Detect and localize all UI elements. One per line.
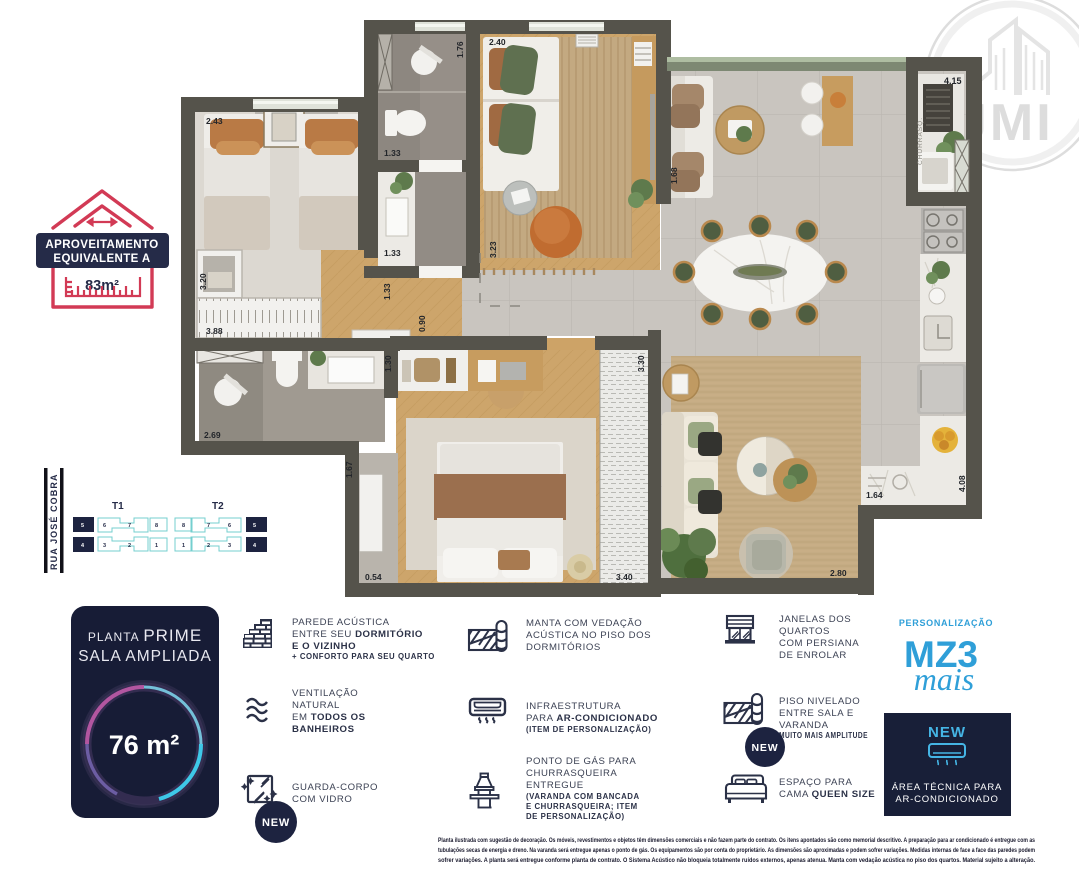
svg-text:DORMITÓRIOS: DORMITÓRIOS — [526, 642, 601, 653]
svg-text:1.30: 1.30 — [383, 355, 393, 372]
svg-text:+ CONFORTO PARA SEU QUARTO: + CONFORTO PARA SEU QUARTO — [292, 652, 435, 661]
svg-text:RUA JOSÉ COBRA: RUA JOSÉ COBRA — [49, 473, 59, 570]
svg-text:CHURRASQ.: CHURRASQ. — [917, 117, 924, 165]
svg-text:VENTILAÇÃO: VENTILAÇÃO — [292, 688, 358, 699]
svg-text:1: 1 — [182, 543, 185, 549]
svg-text:ACÚSTICA NO PISO DOS: ACÚSTICA NO PISO DOS — [526, 630, 651, 641]
svg-text:PARA AR-CONDICIONADO: PARA AR-CONDICIONADO — [526, 713, 658, 724]
svg-text:ENTRE SALA E: ENTRE SALA E — [779, 708, 854, 719]
svg-text:2.40: 2.40 — [489, 37, 506, 47]
svg-text:T2: T2 — [212, 501, 224, 512]
svg-text:Planta ilustrada com sugestão: Planta ilustrada com sugestão de decoraç… — [438, 837, 1036, 844]
svg-text:7: 7 — [128, 523, 131, 529]
svg-text:3.40: 3.40 — [616, 572, 633, 582]
svg-text:2: 2 — [207, 543, 210, 549]
svg-text:APROVEITAMENTO: APROVEITAMENTO — [45, 239, 158, 251]
svg-text:E O VIZINHO: E O VIZINHO — [292, 641, 356, 652]
svg-text:T1: T1 — [112, 501, 124, 512]
svg-text:2.69: 2.69 — [204, 430, 221, 440]
svg-text:COM PERSIANA: COM PERSIANA — [779, 638, 859, 649]
svg-text:2.43: 2.43 — [206, 116, 223, 126]
svg-text:ENTREGUE: ENTREGUE — [526, 780, 584, 791]
svg-text:JANELAS DOS: JANELAS DOS — [779, 614, 851, 625]
svg-text:PERSONALIZAÇÃO: PERSONALIZAÇÃO — [899, 618, 993, 628]
svg-text:EM TODOS OS: EM TODOS OS — [292, 712, 366, 723]
svg-text:COM VIDRO: COM VIDRO — [292, 794, 352, 805]
svg-text:3: 3 — [228, 543, 231, 549]
svg-text:tubulações secas de energia e: tubulações secas de energia e dreno. Na … — [438, 847, 1035, 854]
svg-text:NATURAL: NATURAL — [292, 700, 340, 711]
svg-text:1.67: 1.67 — [344, 461, 354, 478]
svg-text:QUARTOS: QUARTOS — [779, 626, 830, 637]
svg-text:4.15: 4.15 — [944, 76, 962, 86]
svg-text:1.33: 1.33 — [384, 248, 401, 258]
svg-text:76 m²: 76 m² — [109, 730, 180, 760]
svg-text:5: 5 — [81, 523, 84, 529]
svg-text:3.88: 3.88 — [206, 326, 223, 336]
svg-text:PISO NIVELADO: PISO NIVELADO — [779, 696, 860, 707]
svg-text:PONTO DE GÁS PARA: PONTO DE GÁS PARA — [526, 756, 636, 767]
svg-text:6: 6 — [228, 523, 231, 529]
svg-text:SALA AMPLIADA: SALA AMPLIADA — [78, 648, 212, 665]
svg-text:MUITO MAIS AMPLITUDE: MUITO MAIS AMPLITUDE — [779, 731, 868, 740]
svg-text:DE ENROLAR: DE ENROLAR — [779, 650, 847, 661]
svg-text:mais: mais — [914, 661, 974, 697]
svg-text:BANHEIROS: BANHEIROS — [292, 724, 355, 735]
svg-text:8: 8 — [155, 523, 158, 529]
svg-text:8: 8 — [182, 523, 185, 529]
svg-text:6: 6 — [103, 523, 106, 529]
svg-text:3.20: 3.20 — [198, 273, 208, 290]
svg-text:0.54: 0.54 — [365, 572, 382, 582]
svg-text:2: 2 — [128, 543, 131, 549]
svg-text:AR-CONDICIONADO: AR-CONDICIONADO — [895, 794, 998, 805]
svg-text:NEW: NEW — [752, 742, 779, 754]
svg-text:4.08: 4.08 — [957, 475, 967, 492]
svg-text:1.33: 1.33 — [384, 148, 401, 158]
svg-text:5: 5 — [253, 523, 256, 529]
svg-text:1.33: 1.33 — [382, 283, 392, 300]
svg-text:3.23: 3.23 — [488, 241, 498, 258]
svg-text:1.68: 1.68 — [669, 167, 679, 184]
svg-text:CAMA QUEEN SIZE: CAMA QUEEN SIZE — [779, 789, 875, 800]
svg-text:1.76: 1.76 — [455, 41, 465, 58]
svg-text:CHURRASQUEIRA: CHURRASQUEIRA — [526, 768, 617, 779]
svg-text:INFRAESTRUTURA: INFRAESTRUTURA — [526, 701, 621, 712]
svg-text:2.80: 2.80 — [830, 568, 847, 578]
svg-text:ESPAÇO PARA: ESPAÇO PARA — [779, 777, 852, 788]
svg-text:0.90: 0.90 — [417, 315, 427, 332]
svg-text:ÁREA TÉCNICA PARA: ÁREA TÉCNICA PARA — [892, 782, 1002, 793]
svg-text:3.30: 3.30 — [636, 355, 646, 372]
svg-text:EQUIVALENTE A: EQUIVALENTE A — [53, 253, 150, 265]
svg-text:DE PERSONALIZAÇÃO): DE PERSONALIZAÇÃO) — [526, 812, 625, 821]
svg-text:3: 3 — [103, 543, 106, 549]
svg-text:(ITEM DE PERSONALIZAÇÃO): (ITEM DE PERSONALIZAÇÃO) — [526, 725, 651, 734]
svg-text:MANTA COM VEDAÇÃO: MANTA COM VEDAÇÃO — [526, 618, 642, 629]
svg-text:VARANDA: VARANDA — [779, 720, 829, 731]
svg-text:sofrer variações. A planta ser: sofrer variações. A planta será entregue… — [438, 857, 1035, 864]
svg-text:7: 7 — [207, 523, 210, 529]
svg-text:1: 1 — [155, 543, 158, 549]
svg-text:NEW: NEW — [928, 724, 966, 741]
svg-text:(VARANDA COM BANCADA: (VARANDA COM BANCADA — [526, 792, 640, 801]
svg-text:E CHURRASQUEIRA; ITEM: E CHURRASQUEIRA; ITEM — [526, 802, 638, 811]
svg-text:1.64: 1.64 — [866, 490, 883, 500]
svg-text:PAREDE ACÚSTICA: PAREDE ACÚSTICA — [292, 617, 390, 628]
svg-text:ENTRE SEU DORMITÓRIO: ENTRE SEU DORMITÓRIO — [292, 628, 423, 640]
svg-text:NEW: NEW — [262, 817, 290, 829]
svg-text:GUARDA-CORPO: GUARDA-CORPO — [292, 782, 378, 793]
